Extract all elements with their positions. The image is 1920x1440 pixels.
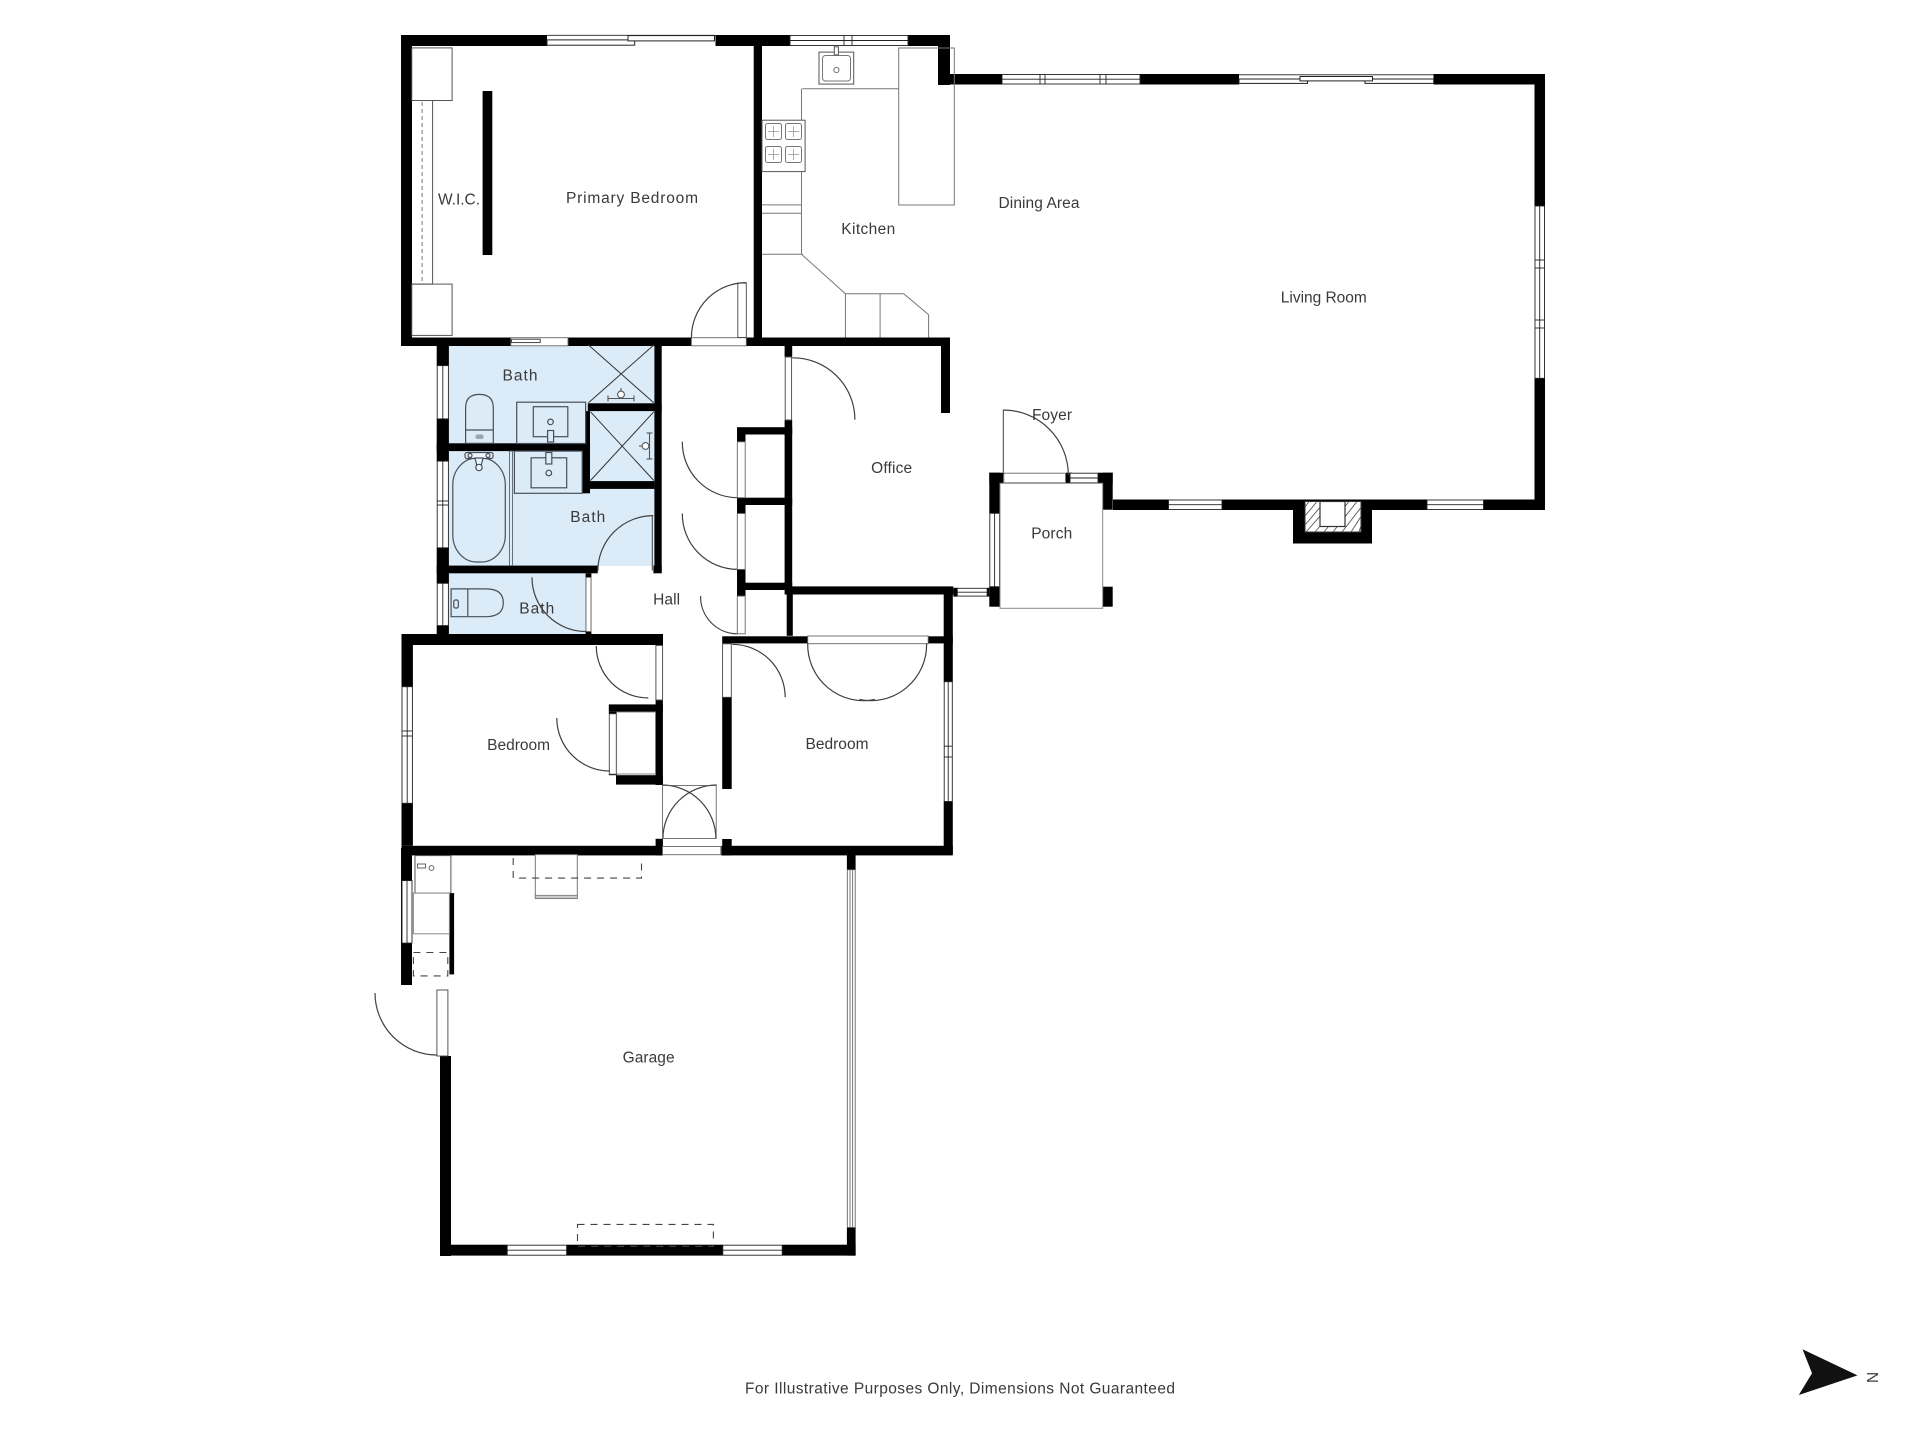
svg-text:W.I.C.: W.I.C. bbox=[438, 192, 480, 209]
svg-text:Garage: Garage bbox=[623, 1050, 675, 1067]
svg-text:Kitchen: Kitchen bbox=[841, 221, 895, 238]
svg-text:Bedroom: Bedroom bbox=[806, 736, 869, 753]
svg-text:Bedroom: Bedroom bbox=[487, 737, 550, 754]
svg-text:For Illustrative Purposes Only: For Illustrative Purposes Only, Dimensio… bbox=[745, 1381, 1175, 1398]
svg-text:Porch: Porch bbox=[1031, 526, 1072, 543]
svg-text:Primary Bedroom: Primary Bedroom bbox=[566, 190, 698, 207]
svg-text:Bath: Bath bbox=[503, 368, 538, 385]
svg-text:Bath: Bath bbox=[570, 509, 605, 526]
svg-text:Office: Office bbox=[871, 460, 912, 477]
svg-text:Foyer: Foyer bbox=[1032, 407, 1072, 424]
svg-text:Bath: Bath bbox=[519, 601, 554, 618]
svg-text:N: N bbox=[1863, 1372, 1880, 1383]
svg-text:Hall: Hall bbox=[653, 592, 680, 609]
svg-text:Living Room: Living Room bbox=[1281, 290, 1367, 307]
svg-text:Dining Area: Dining Area bbox=[999, 195, 1080, 212]
